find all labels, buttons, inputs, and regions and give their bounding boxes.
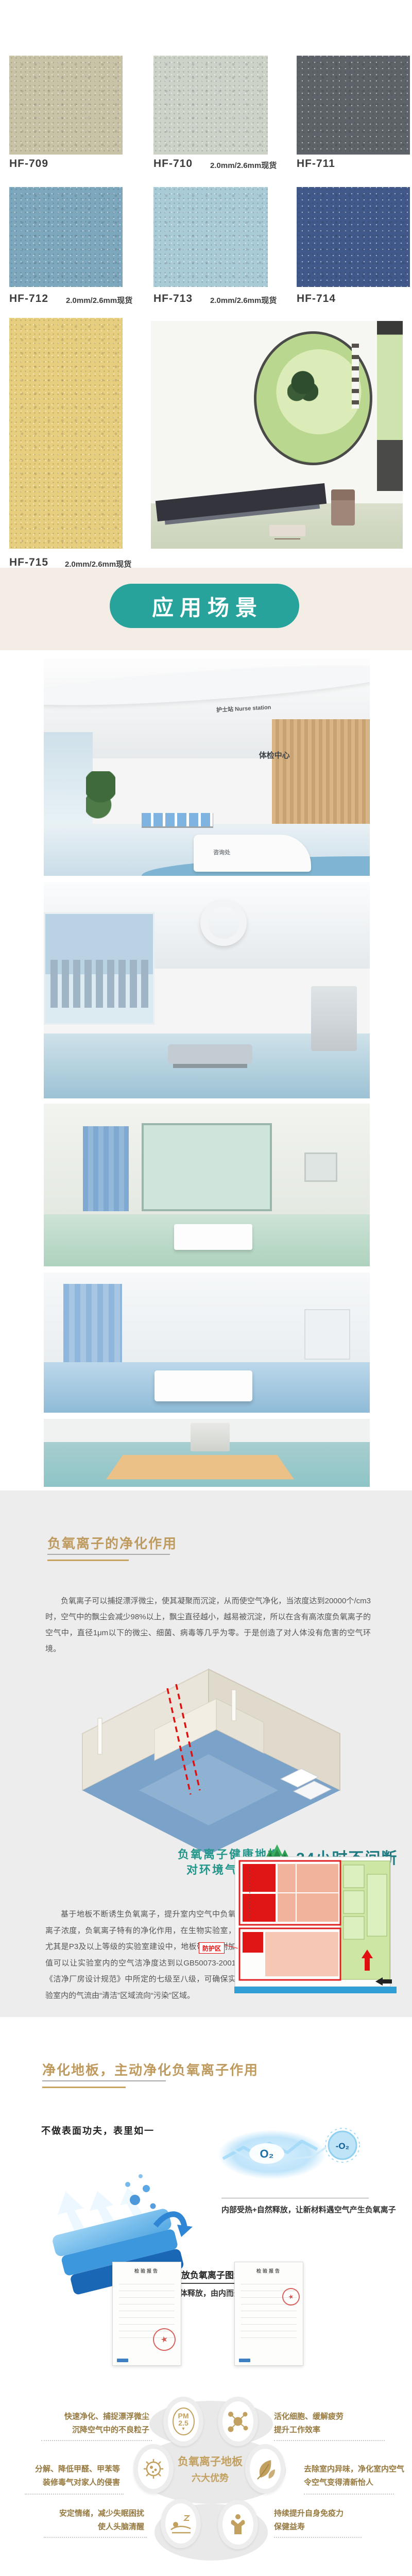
divider [42,2087,126,2088]
advantage-center-title: 负氧离子地板 六大优势 [175,2453,245,2484]
swatch-hf-710 [153,56,268,155]
tea-room-photo [151,321,403,549]
molecule-icon [218,2397,258,2446]
swatch-hf-713 [153,187,268,287]
side-window [377,321,403,491]
swatch-code: HF-711 [297,158,335,170]
certificate-document: 检验报告 ★ [234,2262,303,2366]
swatch-stock: 2.0mm/2.6mm现货 [210,160,277,171]
swatch-hf-715 [9,318,123,549]
monitor [304,1153,337,1182]
advantage-text: 去除室内异味，净化室内空气令空气变得清新怡人 [304,2463,397,2489]
floor-plan-diagram [234,1854,397,1996]
application-scenes-button: 应用场景 [110,584,299,628]
divider [42,2080,166,2081]
advantage-text: 分解、降低甲醛、甲苯等装修毒气对家人的侵害 [30,2463,120,2489]
equipment [311,986,357,1051]
plant [86,771,115,819]
divider [221,2198,369,2198]
chair [331,489,355,526]
wood-wall [272,719,370,832]
lab-paragraph: 基于地板不断诱生负氧离子，提升室内空气中负氧离子浓度，负氧离子特有的净化作用，在… [45,1906,236,2004]
divider [304,2494,394,2495]
seating-row [142,813,213,828]
certificate-document: 检验报告 ★ [112,2262,181,2366]
bench [269,525,305,536]
swatch-code: HF-709 [9,158,48,170]
reception-desk [194,835,311,872]
divider [274,2440,385,2441]
swatch-hf-714 [297,187,410,287]
divider [25,2494,124,2495]
operating-table [168,1044,253,1064]
strength-icon [218,2500,258,2549]
swatch-hf-709 [9,56,123,155]
blue-curtain [83,1126,129,1211]
pm25-icon: PM2.5▼ [163,2397,203,2446]
swatch-code: HF-715 [9,556,48,569]
germ-icon [133,2444,174,2494]
advantage-text: 快速净化、捕捉漂浮微尘沉降空气中的不良粒子 [46,2410,149,2437]
release-diagram-subtitle: 通体释放，由内而外 [172,2287,242,2298]
svg-text:O₂: O₂ [260,2147,274,2160]
application-photo-operating-room [44,882,370,1098]
release-note: 内部受热+自然释放，让新材料遇空气产生负氧离子 [221,2204,396,2215]
swatch-code: HF-713 [153,293,193,305]
city-skyline [50,960,148,1007]
info-desk-sign: 咨询处 [213,848,230,856]
divider [41,2440,152,2441]
bed [174,1224,252,1250]
divider [47,1554,170,1555]
ion-energy-graphic: O₂ -O₂ [215,2123,370,2184]
equipment [191,1423,230,1451]
divider [274,2537,362,2538]
advantage-text: 活化细胞、缓解疲劳提升工作效率 [274,2410,385,2437]
protection-zone-label: 防护区 [199,1942,225,1954]
slogan-text: 不做表面功夫，表里如一 [41,2124,154,2137]
isometric-room-diagram [62,1641,355,1862]
divider [47,1560,129,1561]
advantage-text: 安定情绪，减少失眠困扰使人头脑清醒 [49,2507,144,2534]
plant [287,370,318,406]
application-photo-ward-blue [44,1273,370,1413]
application-photo-or-orange-floor [44,1419,370,1487]
sleep-icon [161,2499,201,2548]
ion-section-heading: 负氧离子的净化作用 [47,1533,177,1552]
glass-wall [142,1123,272,1211]
purify-section-heading: 净化地板，主动净化负氧离子作用 [42,2060,259,2079]
advantage-text: 持续提升自身免疫力保健益寿 [274,2507,362,2534]
svg-text:-O₂: -O₂ [336,2141,349,2151]
window-wall [44,732,93,823]
swatch-hf-711 [297,56,410,155]
product-detail-page: HF-709 HF-710 2.0mm/2.6mm现货 HF-711 HF-71… [0,0,412,2576]
exam-center-sign: 体检中心 [259,750,290,760]
release-diagram-title: 释放负氧离子图示 [173,2268,243,2284]
cabinet [304,1309,350,1360]
swatch-hf-712 [9,187,123,287]
swatch-stock: 2.0mm/2.6mm现货 [66,295,132,306]
curtain [63,1284,122,1365]
swatch-code: HF-712 [9,293,48,305]
surgical-light [200,900,247,946]
bed [154,1370,252,1401]
application-photo-ward-green [44,1104,370,1266]
leaf-icon [245,2444,285,2494]
divider [44,2537,147,2538]
swatch-code: HF-714 [297,293,336,305]
calligraphy [352,336,359,409]
swatch-stock: 2.0mm/2.6mm现货 [210,295,277,306]
swatch-code: HF-710 [153,158,193,170]
application-photo-lobby: 护士站 Nurse station 体检中心 咨询处 [44,658,370,876]
